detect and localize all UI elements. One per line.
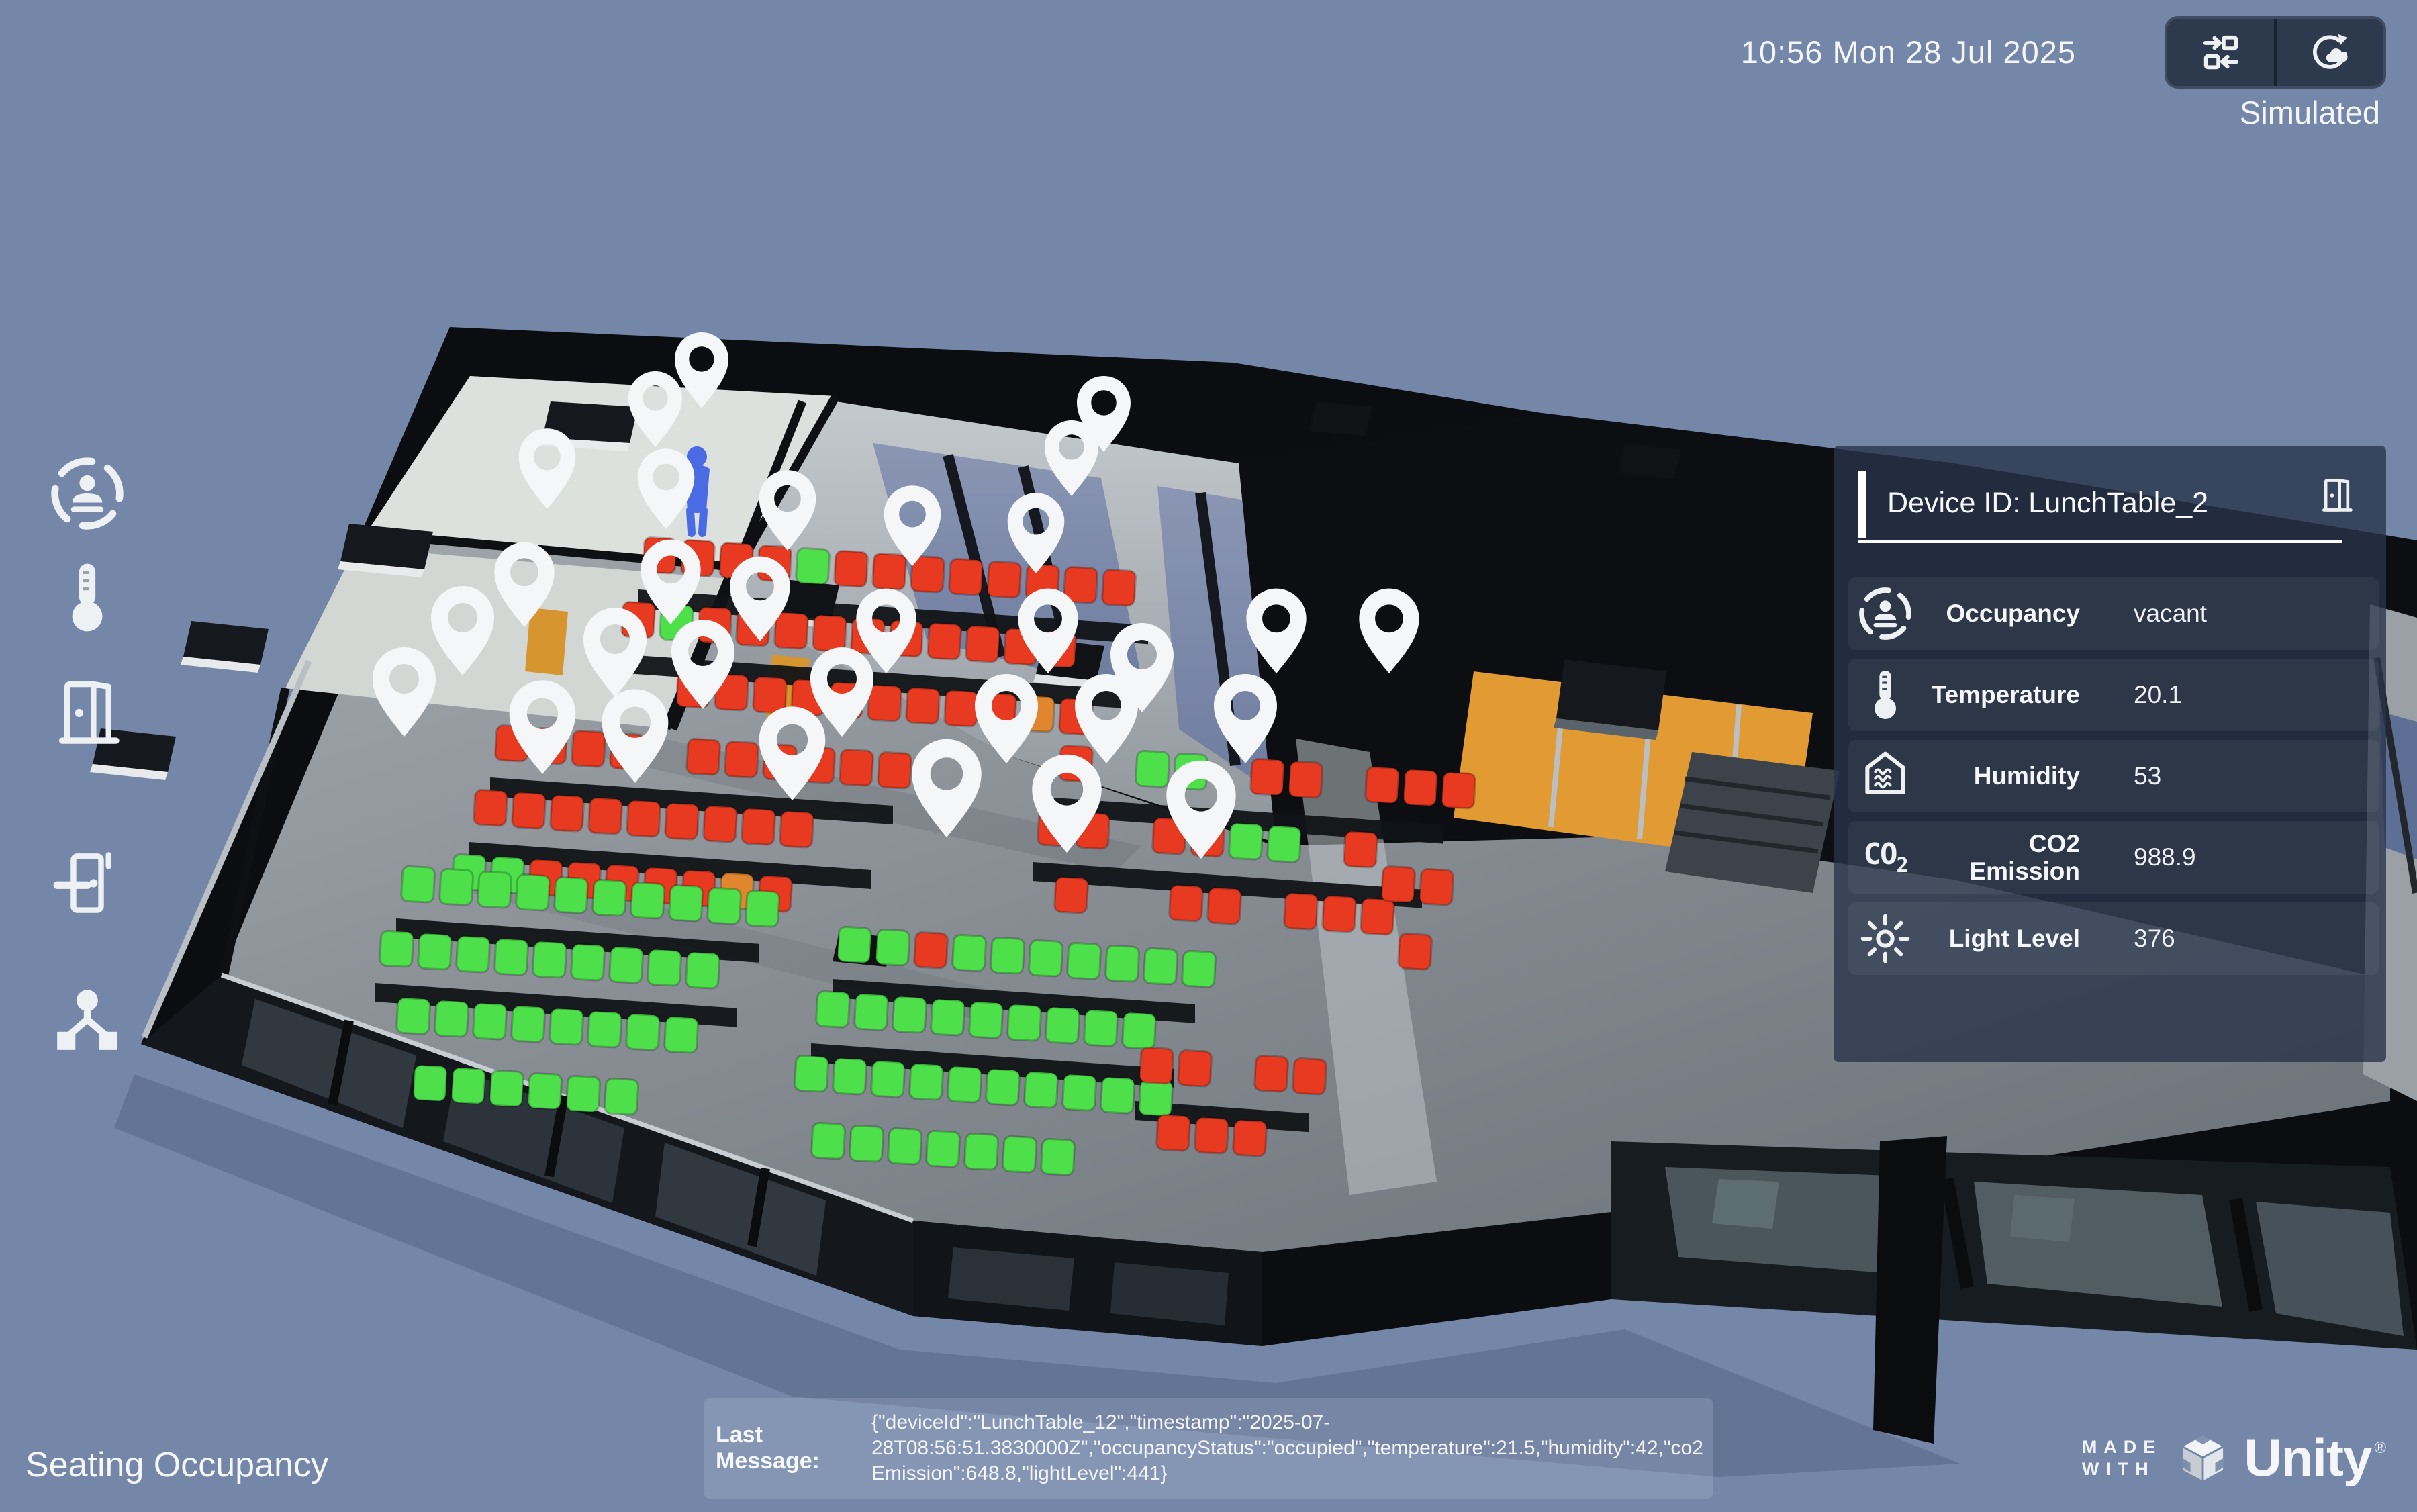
chair-vacant — [1139, 1080, 1173, 1116]
device-id-title: Device ID: LunchTable_2 — [1887, 466, 2208, 540]
network-icon — [50, 983, 125, 1058]
chair-vacant — [969, 1002, 1003, 1038]
unity-name: Unity — [2244, 1428, 2371, 1487]
chair-occupied — [1250, 759, 1284, 795]
sun-icon — [1858, 912, 1912, 965]
chair-vacant — [456, 936, 490, 972]
chair-occupied — [949, 559, 983, 595]
chair-occupied — [774, 612, 808, 649]
cloud-sync-button[interactable] — [2274, 19, 2383, 86]
chair-vacant — [871, 1061, 905, 1097]
chair-vacant — [1067, 943, 1101, 979]
chair-vacant — [664, 1017, 698, 1053]
chair-vacant — [854, 994, 888, 1030]
co2-icon: CO2 — [1863, 837, 1907, 878]
chair-occupied — [1322, 896, 1356, 932]
chair-vacant — [1229, 823, 1263, 859]
chair-vacant — [1084, 1010, 1118, 1046]
chair-vacant — [626, 1014, 660, 1050]
chair-vacant — [669, 885, 703, 921]
chair-vacant — [909, 1064, 943, 1100]
chair-occupied — [867, 685, 902, 721]
chair-vacant — [532, 941, 567, 978]
clock-timestamp: 10:56 Mon 28 Jul 2025 — [1741, 34, 2076, 70]
last-message-label: Last Message: — [716, 1422, 871, 1474]
sensor-readings: Occupancy vacant Temperature 20.1 — [1848, 577, 2379, 975]
sensor-label: CO2 Emission — [1922, 830, 2080, 886]
chair-vacant — [592, 880, 626, 916]
chair-vacant — [396, 998, 430, 1034]
chair-vacant — [1135, 751, 1170, 787]
chair-vacant — [528, 1073, 562, 1109]
chair-vacant — [1024, 1072, 1058, 1108]
chair-vacant — [477, 871, 512, 908]
chair-vacant — [554, 877, 588, 913]
chair-vacant — [587, 1011, 622, 1047]
sensor-value: 53 — [2134, 762, 2161, 790]
chair-vacant — [549, 1008, 583, 1045]
chair-occupied — [1441, 772, 1476, 808]
chair-vacant — [796, 548, 830, 584]
chair-occupied — [839, 749, 873, 786]
sidebar-network-toggle[interactable] — [47, 980, 128, 1061]
chair-occupied — [588, 798, 622, 834]
chair-occupied — [812, 615, 847, 651]
chair-occupied — [1169, 885, 1203, 921]
chair-occupied — [686, 739, 720, 775]
chair-vacant — [888, 1128, 922, 1164]
with-line: WITH — [2082, 1458, 2163, 1480]
chair-vacant — [892, 996, 927, 1033]
chair-occupied — [1233, 1120, 1267, 1156]
panel-divider — [1858, 540, 2342, 543]
made-with-unity-logo: MADE WITH Unity® — [2082, 1427, 2386, 1489]
thermometer-icon — [50, 560, 125, 635]
chair-vacant — [875, 929, 910, 965]
chair-occupied — [1398, 933, 1432, 970]
chair-occupied — [1054, 877, 1088, 913]
chair-vacant — [434, 1000, 469, 1037]
sensor-row-humidity: Humidity 53 — [1848, 740, 2379, 812]
chair-vacant — [511, 1006, 545, 1042]
sidebar-door-toggle[interactable] — [47, 673, 128, 753]
app-window: 10:56 Mon 28 Jul 2025 Simulated — [0, 0, 2417, 1512]
chair-vacant — [516, 874, 550, 910]
occupancy-icon — [48, 455, 126, 532]
chair-occupied — [1292, 1058, 1327, 1094]
occupancy-icon — [1857, 585, 1913, 642]
chair-occupied — [872, 553, 906, 589]
chair-occupied — [1284, 893, 1318, 929]
page-title: Seating Occupancy — [26, 1445, 328, 1485]
sensor-label: Light Level — [1922, 925, 2080, 952]
chair-vacant — [439, 869, 473, 905]
chair-occupied — [626, 800, 661, 837]
chair-vacant — [1062, 1074, 1096, 1111]
sidebar-door-exit-toggle[interactable] — [47, 847, 128, 928]
chair-vacant — [926, 1131, 960, 1167]
chair-vacant — [745, 890, 779, 927]
unity-cube-icon — [2178, 1433, 2228, 1483]
chair-vacant — [1045, 1007, 1080, 1043]
panel-accent-bar — [1858, 471, 1866, 538]
chair-occupied — [1419, 869, 1454, 905]
panel-door-button[interactable] — [2315, 474, 2358, 517]
chair-vacant — [1182, 951, 1216, 987]
chair-occupied — [1381, 866, 1415, 902]
chair-occupied — [550, 795, 584, 831]
chair-vacant — [571, 944, 605, 980]
chair-occupied — [965, 626, 1000, 662]
chair-vacant — [494, 939, 528, 975]
unity-wordmark: Unity® — [2244, 1427, 2386, 1489]
made-line: MADE — [2082, 1436, 2163, 1458]
chair-vacant — [1007, 1004, 1041, 1041]
chair-occupied — [779, 811, 814, 847]
chair-occupied — [906, 688, 940, 724]
last-message-json: {"deviceId":"LunchTable_12","timestamp":… — [871, 1410, 1707, 1486]
door-exit-icon — [50, 850, 125, 925]
sidebar-occupancy-toggle[interactable] — [47, 453, 128, 534]
chair-occupied — [1365, 767, 1399, 803]
sensor-value: 20.1 — [2134, 681, 2182, 709]
chair-occupied — [724, 741, 759, 777]
chair-occupied — [1139, 1047, 1174, 1084]
chair-occupied — [1194, 1117, 1229, 1153]
chair-vacant — [604, 1078, 638, 1115]
chair-occupied — [1178, 1050, 1212, 1086]
chair-vacant — [811, 1123, 845, 1159]
chair-vacant — [609, 947, 643, 983]
chair-vacant — [816, 991, 850, 1027]
sensor-row-light: Light Level 376 — [1848, 902, 2379, 975]
chair-occupied — [1288, 761, 1323, 798]
sensor-label: Temperature — [1922, 681, 2080, 708]
chair-vacant — [473, 1003, 507, 1039]
sensor-label: Occupancy — [1922, 600, 2080, 627]
chair-occupied — [1102, 569, 1136, 606]
chair-occupied — [741, 808, 775, 845]
made-with-label: MADE WITH — [2082, 1436, 2163, 1480]
stairwell — [1665, 752, 1840, 893]
chair-vacant — [986, 1069, 1020, 1105]
chair-occupied — [473, 790, 508, 826]
chair-vacant — [401, 866, 435, 902]
io-transfer-button[interactable] — [2167, 19, 2274, 86]
chair-vacant — [1100, 1077, 1135, 1113]
chair-occupied — [512, 792, 546, 829]
chair-vacant — [990, 937, 1025, 974]
chair-vacant — [566, 1076, 600, 1112]
sensor-value: vacant — [2134, 600, 2207, 628]
sensor-value: 376 — [2134, 925, 2175, 953]
io-transfer-icon — [2200, 32, 2242, 73]
last-message-bar: Last Message: {"deviceId":"LunchTable_12… — [704, 1398, 1713, 1499]
chair-vacant — [418, 933, 452, 970]
device-detail-panel: Device ID: LunchTable_2 — [1834, 446, 2386, 1062]
registered-mark: ® — [2374, 1439, 2386, 1457]
chair-vacant — [837, 927, 871, 963]
humidity-icon — [1858, 749, 1912, 803]
chair-vacant — [1041, 1139, 1075, 1175]
chair-vacant — [685, 952, 720, 988]
chair-vacant — [630, 882, 665, 918]
sidebar-temperature-toggle[interactable] — [47, 557, 128, 638]
chair-occupied — [1343, 831, 1378, 867]
chair-vacant — [413, 1065, 447, 1101]
chair-vacant — [1002, 1136, 1037, 1172]
chair-vacant — [964, 1133, 998, 1170]
chair-vacant — [833, 1058, 867, 1094]
sensor-value: 988.9 — [2134, 843, 2196, 871]
chair-vacant — [451, 1068, 485, 1104]
sensor-row-occupancy: Occupancy vacant — [1848, 577, 2379, 650]
cloud-sync-icon — [2310, 32, 2351, 73]
chair-vacant — [707, 888, 741, 924]
chair-occupied — [1360, 898, 1394, 935]
chair-vacant — [1029, 940, 1063, 976]
chair-occupied — [834, 551, 868, 587]
chair-vacant — [1122, 1012, 1156, 1049]
chair-occupied — [944, 690, 978, 726]
chair-vacant — [947, 1066, 982, 1102]
chair-vacant — [647, 949, 681, 986]
chair-occupied — [753, 677, 787, 713]
chair-occupied — [1403, 769, 1437, 806]
chair-vacant — [1267, 826, 1301, 862]
chair-occupied — [914, 932, 948, 968]
chair-vacant — [1105, 945, 1139, 982]
chair-vacant — [1143, 948, 1178, 984]
sensor-row-co2: CO2 CO2 Emission 988.9 — [1848, 821, 2379, 894]
chair-vacant — [952, 935, 986, 971]
sensor-row-temperature: Temperature 20.1 — [1848, 659, 2379, 731]
chair-occupied — [1207, 888, 1241, 924]
sensor-label: Humidity — [1922, 762, 2080, 790]
mode-toolbar — [2167, 19, 2383, 86]
door-icon — [50, 675, 125, 751]
chair-occupied — [878, 752, 912, 788]
door-icon — [2318, 477, 2355, 514]
chair-occupied — [987, 561, 1021, 598]
chair-vacant — [794, 1055, 828, 1092]
chair-occupied — [927, 623, 961, 659]
chair-occupied — [1156, 1115, 1190, 1151]
mode-label: Simulated — [2240, 94, 2380, 131]
thermometer-icon — [1858, 668, 1912, 722]
chair-vacant — [931, 999, 965, 1035]
chair-occupied — [1254, 1055, 1288, 1092]
chair-vacant — [379, 931, 414, 967]
chair-occupied — [703, 806, 737, 842]
chair-vacant — [489, 1070, 524, 1106]
chair-occupied — [665, 803, 699, 839]
chair-vacant — [849, 1125, 884, 1162]
chair-occupied — [571, 730, 606, 767]
